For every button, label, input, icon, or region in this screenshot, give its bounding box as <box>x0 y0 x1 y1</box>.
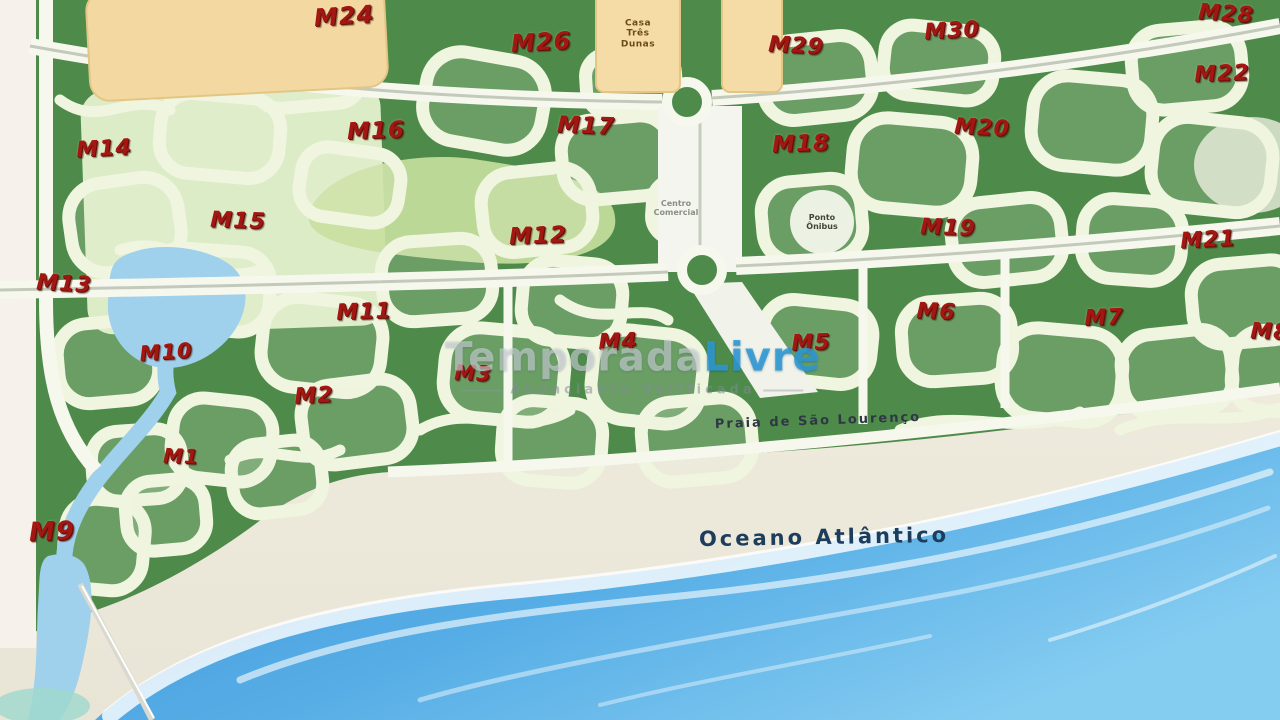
map-margin <box>0 0 36 648</box>
map-canvas <box>0 0 1280 720</box>
resort-map-image[interactable]: M24M26M29M30M28M22M20M14M16M17M18M15M12M… <box>0 0 1280 720</box>
kiosk <box>790 190 854 254</box>
